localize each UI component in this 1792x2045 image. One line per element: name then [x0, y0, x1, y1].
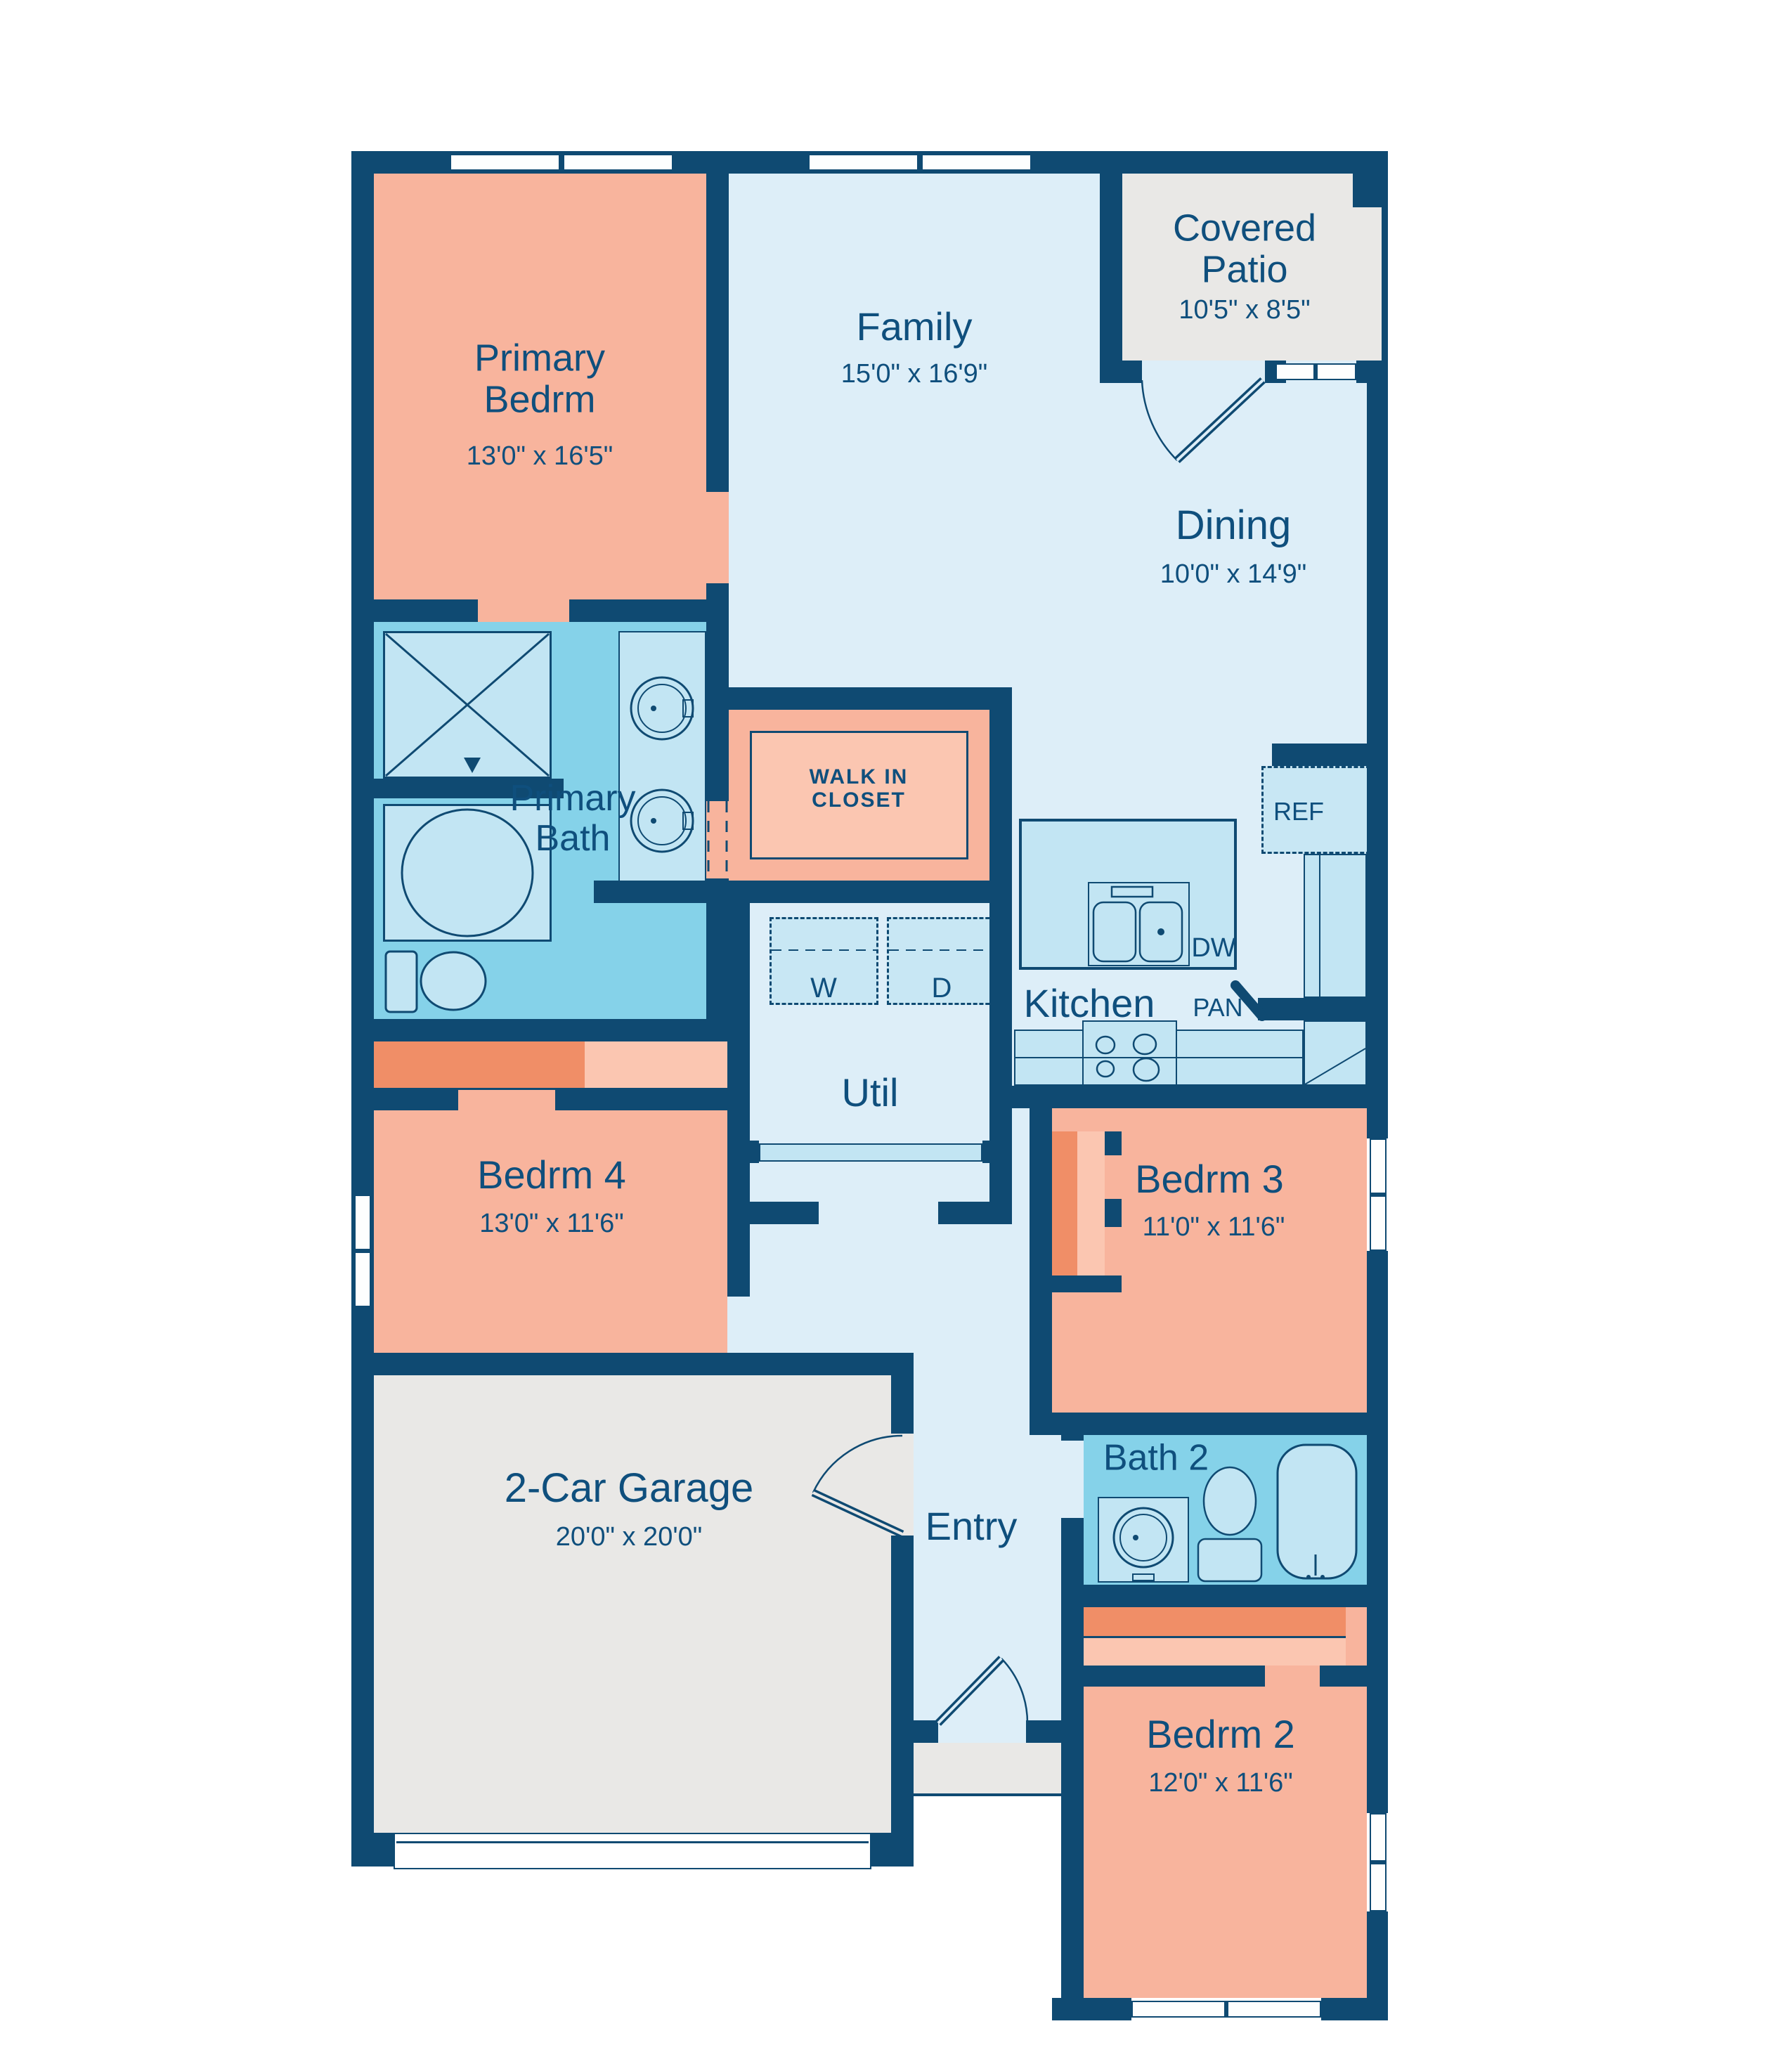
door-arc [1142, 380, 1177, 460]
bedroom3-label: Bedrm 3 [1135, 1157, 1284, 1201]
family-label: Family [857, 305, 973, 349]
bedroom2-dims: 12'0" x 11'6" [1148, 1769, 1293, 1798]
dryer-label: D [932, 973, 952, 1004]
bedroom2-label: Bedrm 2 [1146, 1713, 1295, 1756]
counter-edge [1305, 1049, 1365, 1084]
dashed-opening [708, 801, 727, 878]
toilet-tank [1198, 1539, 1261, 1581]
sink [1114, 1508, 1173, 1567]
burner [1096, 1037, 1115, 1053]
bathtub [1278, 1445, 1356, 1578]
floor-plan: Primary Bedrm 13'0" x 16'5" Family 15'0"… [0, 0, 1792, 2045]
kitchen-label: Kitchen [1024, 982, 1155, 1025]
pantry-label: PAN [1193, 994, 1242, 1022]
dining-label: Dining [1176, 503, 1291, 548]
shower-glass [386, 634, 549, 776]
bath2-label: Bath 2 [1103, 1438, 1209, 1478]
primary-bedroom-dims: 13'0" x 16'5" [467, 442, 613, 472]
toilet-bowl [421, 952, 486, 1010]
covered-patio-dims: 10'5" x 8'5" [1179, 296, 1310, 325]
sink-basin [1093, 902, 1136, 961]
faucet [1112, 887, 1153, 897]
refrigerator-label: REF [1273, 798, 1324, 826]
walk-in-closet-label: WALK IN CLOSET [774, 765, 943, 812]
door-arc [1001, 1658, 1027, 1723]
shower-head-icon [464, 758, 481, 773]
entry-label: Entry [926, 1505, 1018, 1548]
family-dims: 15'0" x 16'9" [841, 360, 987, 389]
bedroom4-dims: 13'0" x 11'6" [479, 1209, 624, 1239]
garage-label: 2-Car Garage [505, 1466, 754, 1511]
burner [1134, 1058, 1159, 1081]
bedroom3-dims: 11'0" x 11'6" [1143, 1213, 1285, 1242]
utility-label: Util [842, 1071, 899, 1115]
door-arc [813, 1436, 902, 1493]
burner [1097, 1061, 1114, 1077]
primary-bath-label: Primary Bath [467, 779, 678, 859]
washer-label: W [810, 973, 837, 1004]
primary-bedroom-label: Primary Bedrm [434, 338, 645, 422]
garage-dims: 20'0" x 20'0" [556, 1523, 702, 1552]
dining-dims: 10'0" x 14'9" [1160, 560, 1306, 590]
toilet-bowl [1204, 1467, 1256, 1535]
dishwasher-label: DW [1191, 934, 1235, 963]
toilet-tank [386, 952, 417, 1012]
covered-patio-label: Covered Patio [1129, 208, 1361, 292]
bedroom4-label: Bedrm 4 [477, 1153, 626, 1197]
burner [1134, 1034, 1156, 1054]
